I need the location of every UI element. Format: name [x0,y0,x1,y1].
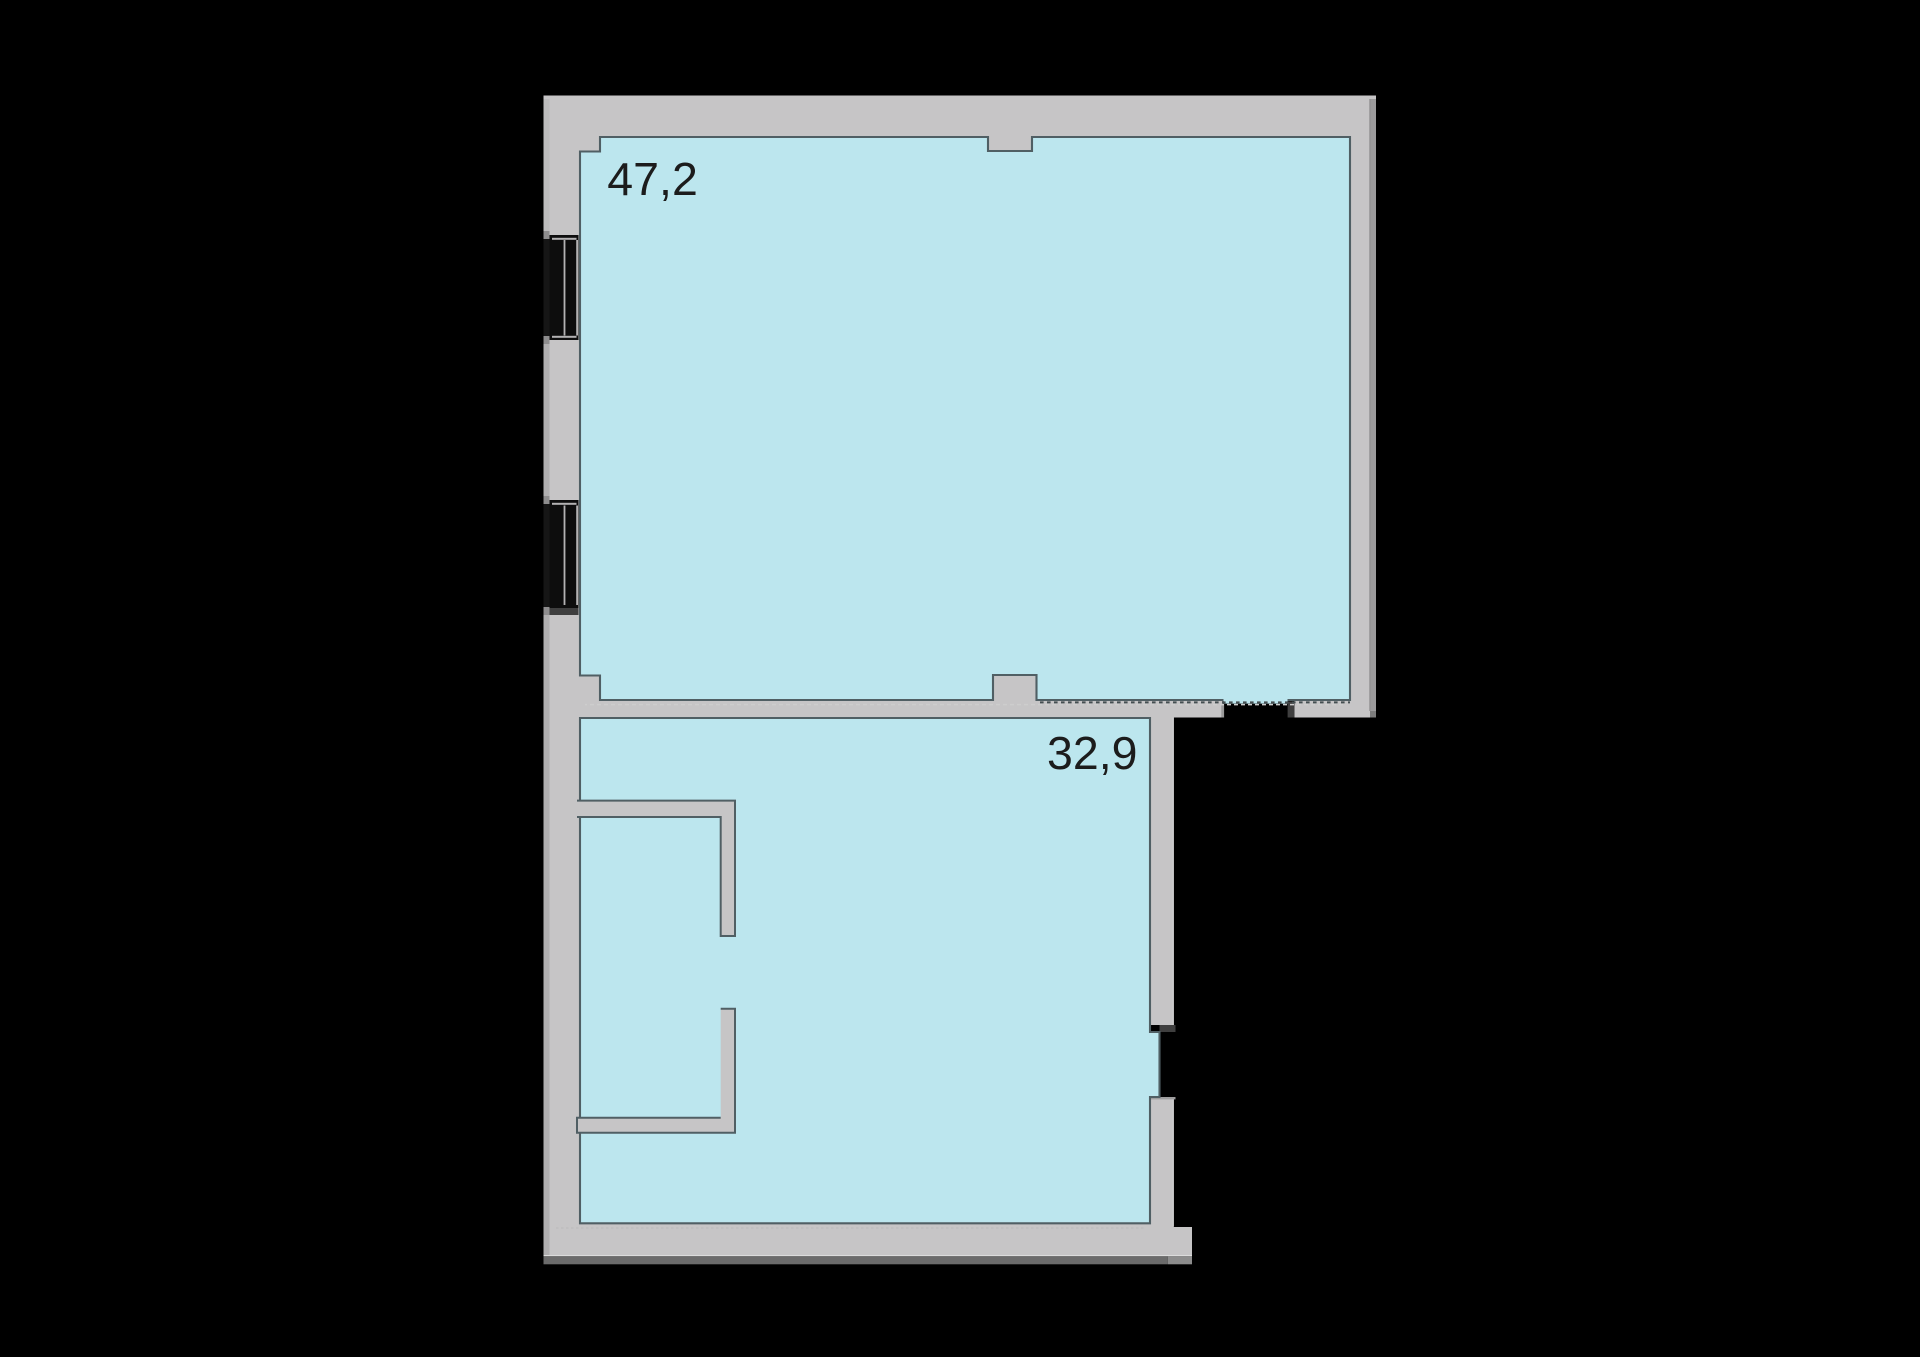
svg-text:32,9: 32,9 [1047,727,1138,779]
svg-text:47,2: 47,2 [607,153,698,205]
